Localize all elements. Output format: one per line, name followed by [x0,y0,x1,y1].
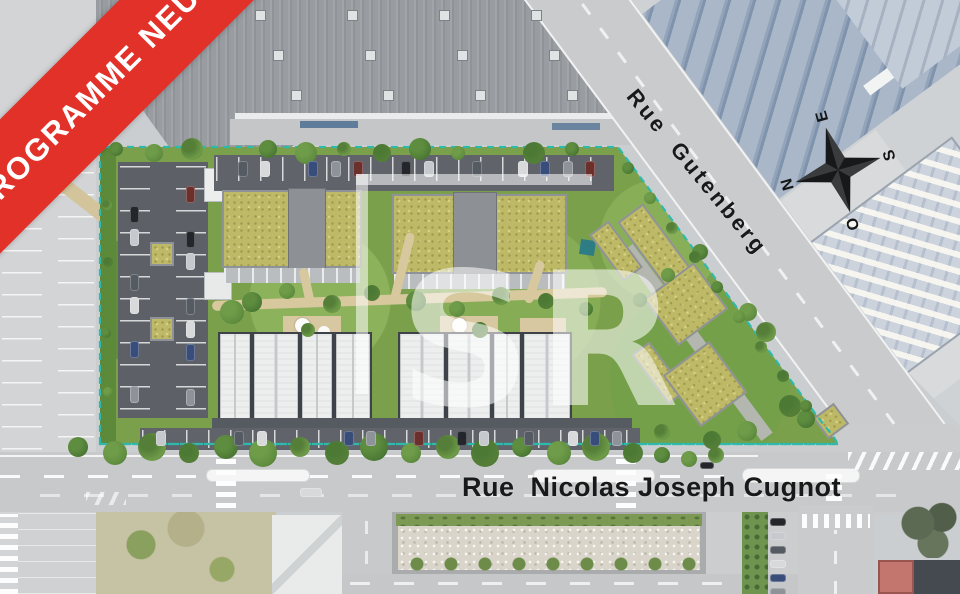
tree [689,251,701,263]
car [186,389,195,406]
car [186,344,195,361]
tree [681,451,697,467]
car [770,532,786,540]
car [366,431,376,446]
tree [737,421,757,441]
tree [777,370,789,382]
tree [755,341,767,353]
tree [756,322,776,342]
watermark-bar-left [356,174,368,394]
tree [654,447,670,463]
compass-rose: N E S O [768,100,908,240]
skylight [365,50,376,61]
tree [145,144,163,162]
tree [733,311,745,323]
tree [103,441,127,465]
skylight [291,90,302,101]
car [238,161,248,177]
compass-s: S [880,147,899,162]
car [186,253,195,270]
car [130,341,139,358]
skylight [457,50,468,61]
car [130,297,139,314]
aerial-site-plan: SR Rue Gutenberg Rue Nicolas Joseph Cugn… [0,0,960,594]
tree [703,431,721,449]
watermark-text: SR [398,248,683,434]
tree [242,292,262,312]
tree [109,142,123,156]
car [344,431,354,446]
skylight [383,90,394,101]
car [308,161,318,177]
car [186,298,195,315]
tree [103,387,113,397]
compass-o: O [844,216,864,233]
car [257,431,267,446]
skylight [439,10,450,21]
skylight [549,50,560,61]
skylight [531,10,542,21]
tree [181,138,203,160]
tree [290,437,310,457]
car [234,431,244,446]
car [186,186,195,203]
skylight [567,90,578,101]
compass-star [784,116,893,225]
car [770,574,786,582]
tree [68,437,88,457]
car [130,206,139,223]
skylight [475,90,486,101]
tree [565,142,579,156]
tree [708,447,724,463]
car [130,229,139,246]
tree [644,192,656,204]
watermark-bar-top [356,174,592,185]
car [260,161,270,177]
tree [101,328,111,338]
car [156,431,166,446]
compass-n: N [778,176,798,192]
car [770,560,786,568]
tree [259,140,277,158]
tree [103,257,113,267]
skylight [347,10,358,21]
car [770,518,786,526]
tree [337,142,351,156]
car [770,546,786,554]
car [186,231,195,248]
car [331,161,341,177]
tree [711,281,723,293]
car [130,274,139,291]
tree [323,295,341,313]
car [300,488,322,497]
tree [102,200,112,210]
skylight [273,50,284,61]
car [186,321,195,338]
street-label-cugnot: Rue Nicolas Joseph Cugnot [462,472,841,503]
car [700,462,714,469]
tree [622,162,634,174]
tree [279,283,295,299]
car [770,588,786,594]
tree [301,323,315,337]
skylight [255,10,266,21]
tree [451,146,465,160]
tree [179,443,199,463]
tree [220,300,244,324]
tree [800,400,812,412]
tree [373,144,391,162]
tree [409,138,431,160]
car [130,386,139,403]
tree [797,410,815,428]
compass-e: E [813,108,832,123]
